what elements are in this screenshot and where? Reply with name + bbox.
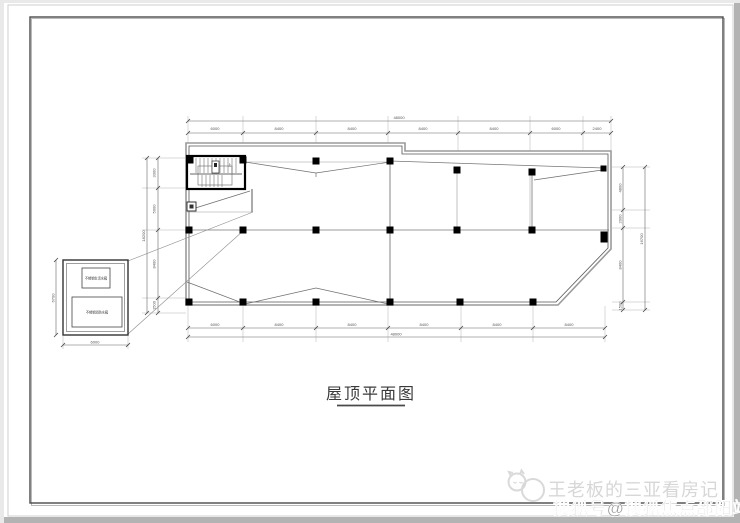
dim-total-bottom: 48000	[390, 332, 402, 337]
dim-label: 8400	[348, 322, 358, 327]
watermark-line1: 王老板的三亚看房记	[548, 480, 719, 500]
dim-total-top: 48000	[393, 115, 405, 120]
dim-label: 8400	[419, 126, 429, 131]
dim-label: 5000	[152, 204, 157, 214]
tank-lower-label: 不锈钢消防水箱	[86, 310, 109, 315]
dim-label: 2400	[593, 126, 603, 131]
parapet-outer-line	[186, 143, 611, 305]
dim-label: 8400	[490, 126, 500, 131]
dim-label: 8400	[618, 260, 623, 270]
dim-label: 8400	[493, 322, 503, 327]
dim-label: 6000	[552, 126, 562, 131]
detail-dim-width: 6000	[91, 340, 101, 345]
dim-label: 1500	[618, 301, 623, 311]
dim-label: 4800	[618, 183, 623, 193]
dim-label: 8400	[152, 259, 157, 269]
building-plan: 上	[128, 143, 611, 334]
dim-label: 3300	[152, 168, 157, 178]
dim-label: 8400	[565, 322, 575, 327]
dim-label: 1500	[152, 300, 157, 310]
dim-label: 8400	[275, 126, 285, 131]
dim-label: 8400	[275, 322, 285, 327]
page-title: 屋顶平面图	[326, 385, 416, 403]
watermark-line2: 搜狐号@搜狐焦点邵阳站	[553, 498, 740, 518]
detail-dim-height: 6700	[51, 293, 56, 303]
dim-label: 2000	[618, 214, 623, 224]
scanned-sheet: 48000 6000 8400 8400 8400 8400 6000 2400…	[0, 0, 740, 523]
dim-label: 6000	[211, 126, 221, 131]
dim-total-left: 18200	[141, 230, 146, 242]
roof-plan-drawing: 48000 6000 8400 8400 8400 8400 6000 2400…	[0, 0, 740, 523]
dim-label: 6000	[211, 322, 221, 327]
dim-label: 8400	[420, 322, 430, 327]
dim-label: 8400	[348, 126, 358, 131]
drawing-title: 屋顶平面图	[326, 385, 416, 406]
water-tank-detail: 不锈钢生活水箱 不锈钢消防水箱 6000 6700	[51, 258, 131, 349]
tank-upper-label: 不锈钢生活水箱	[85, 276, 108, 281]
dim-total-right: 16700	[639, 233, 644, 245]
